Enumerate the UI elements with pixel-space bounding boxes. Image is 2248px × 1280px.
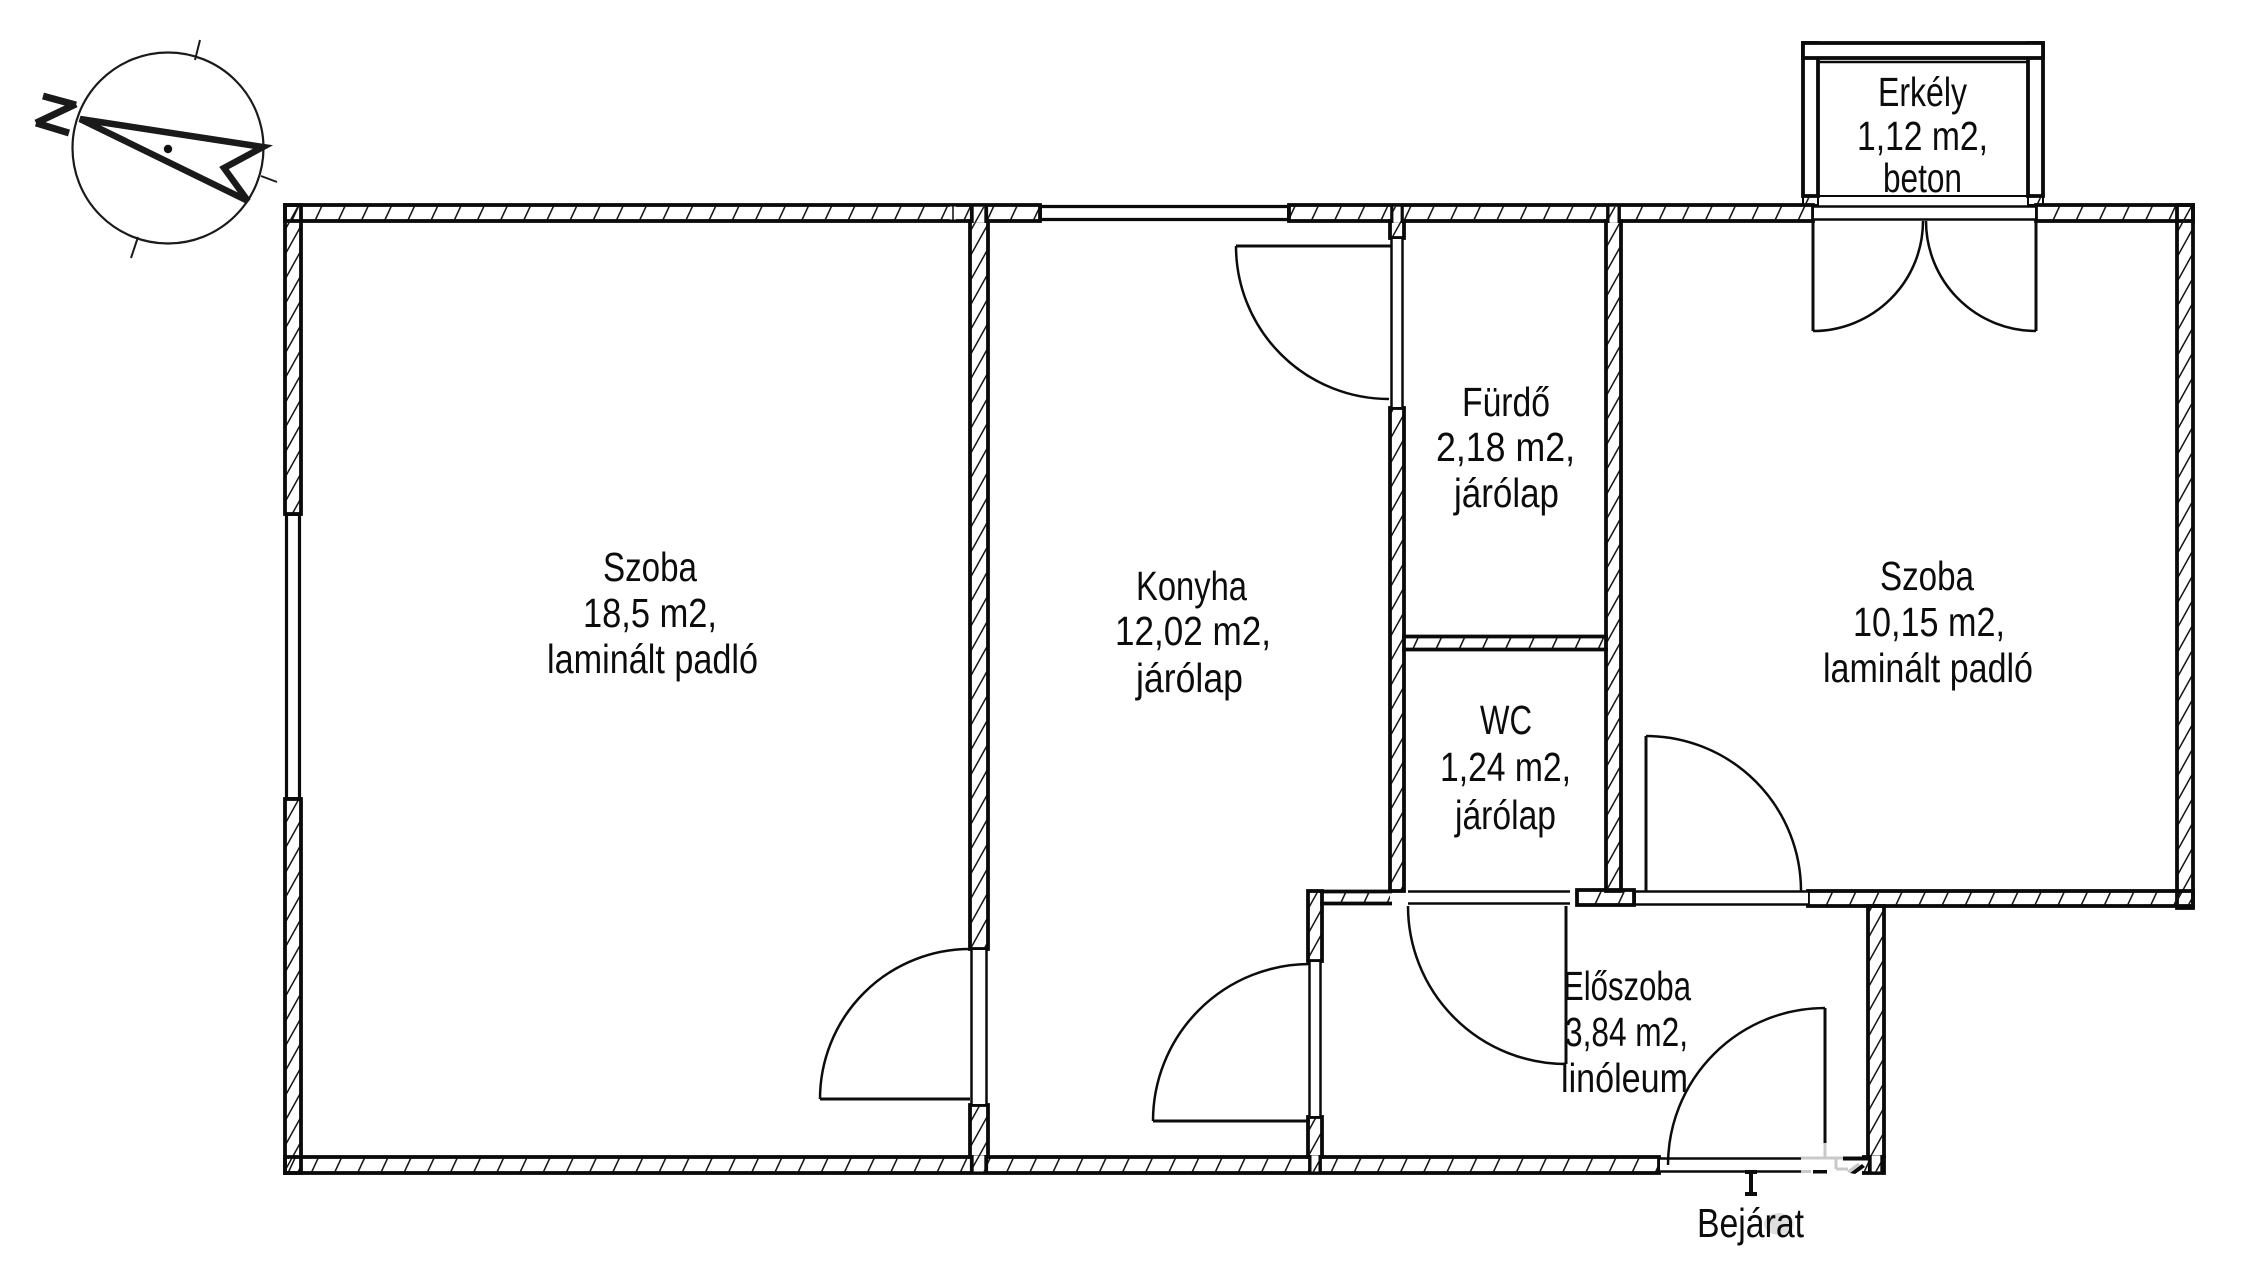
svg-text:Előszoba: Előszoba: [1563, 963, 1691, 1009]
svg-text:laminált padló: laminált padló: [1823, 645, 2033, 691]
svg-text:12,02 m2,: 12,02 m2,: [1115, 608, 1271, 654]
svg-text:Bejárat: Bejárat: [1697, 1200, 1804, 1246]
svg-text:járólap: járólap: [1454, 792, 1556, 838]
svg-text:1,12 m2,: 1,12 m2,: [1857, 113, 1988, 159]
svg-text:Szoba: Szoba: [1880, 553, 1974, 599]
svg-text:2,18 m2,: 2,18 m2,: [1436, 424, 1575, 470]
svg-text:linóleum: linóleum: [1561, 1055, 1688, 1101]
svg-text:Konyha: Konyha: [1136, 563, 1247, 609]
svg-text:1,24 m2,: 1,24 m2,: [1440, 744, 1571, 790]
svg-text:WC: WC: [1480, 697, 1532, 743]
svg-text:járólap: járólap: [1135, 655, 1243, 701]
svg-text:Erkély: Erkély: [1878, 69, 1967, 115]
svg-text:járólap: járólap: [1453, 470, 1559, 516]
svg-text:Fürdő: Fürdő: [1462, 379, 1550, 425]
svg-text:Szoba: Szoba: [603, 544, 697, 590]
svg-text:18,5 m2,: 18,5 m2,: [583, 590, 717, 636]
svg-text:3,84 m2,: 3,84 m2,: [1565, 1009, 1688, 1055]
svg-text:laminált padló: laminált padló: [547, 636, 758, 682]
svg-text:beton: beton: [1883, 155, 1962, 201]
svg-text:10,15 m2,: 10,15 m2,: [1853, 599, 2005, 645]
